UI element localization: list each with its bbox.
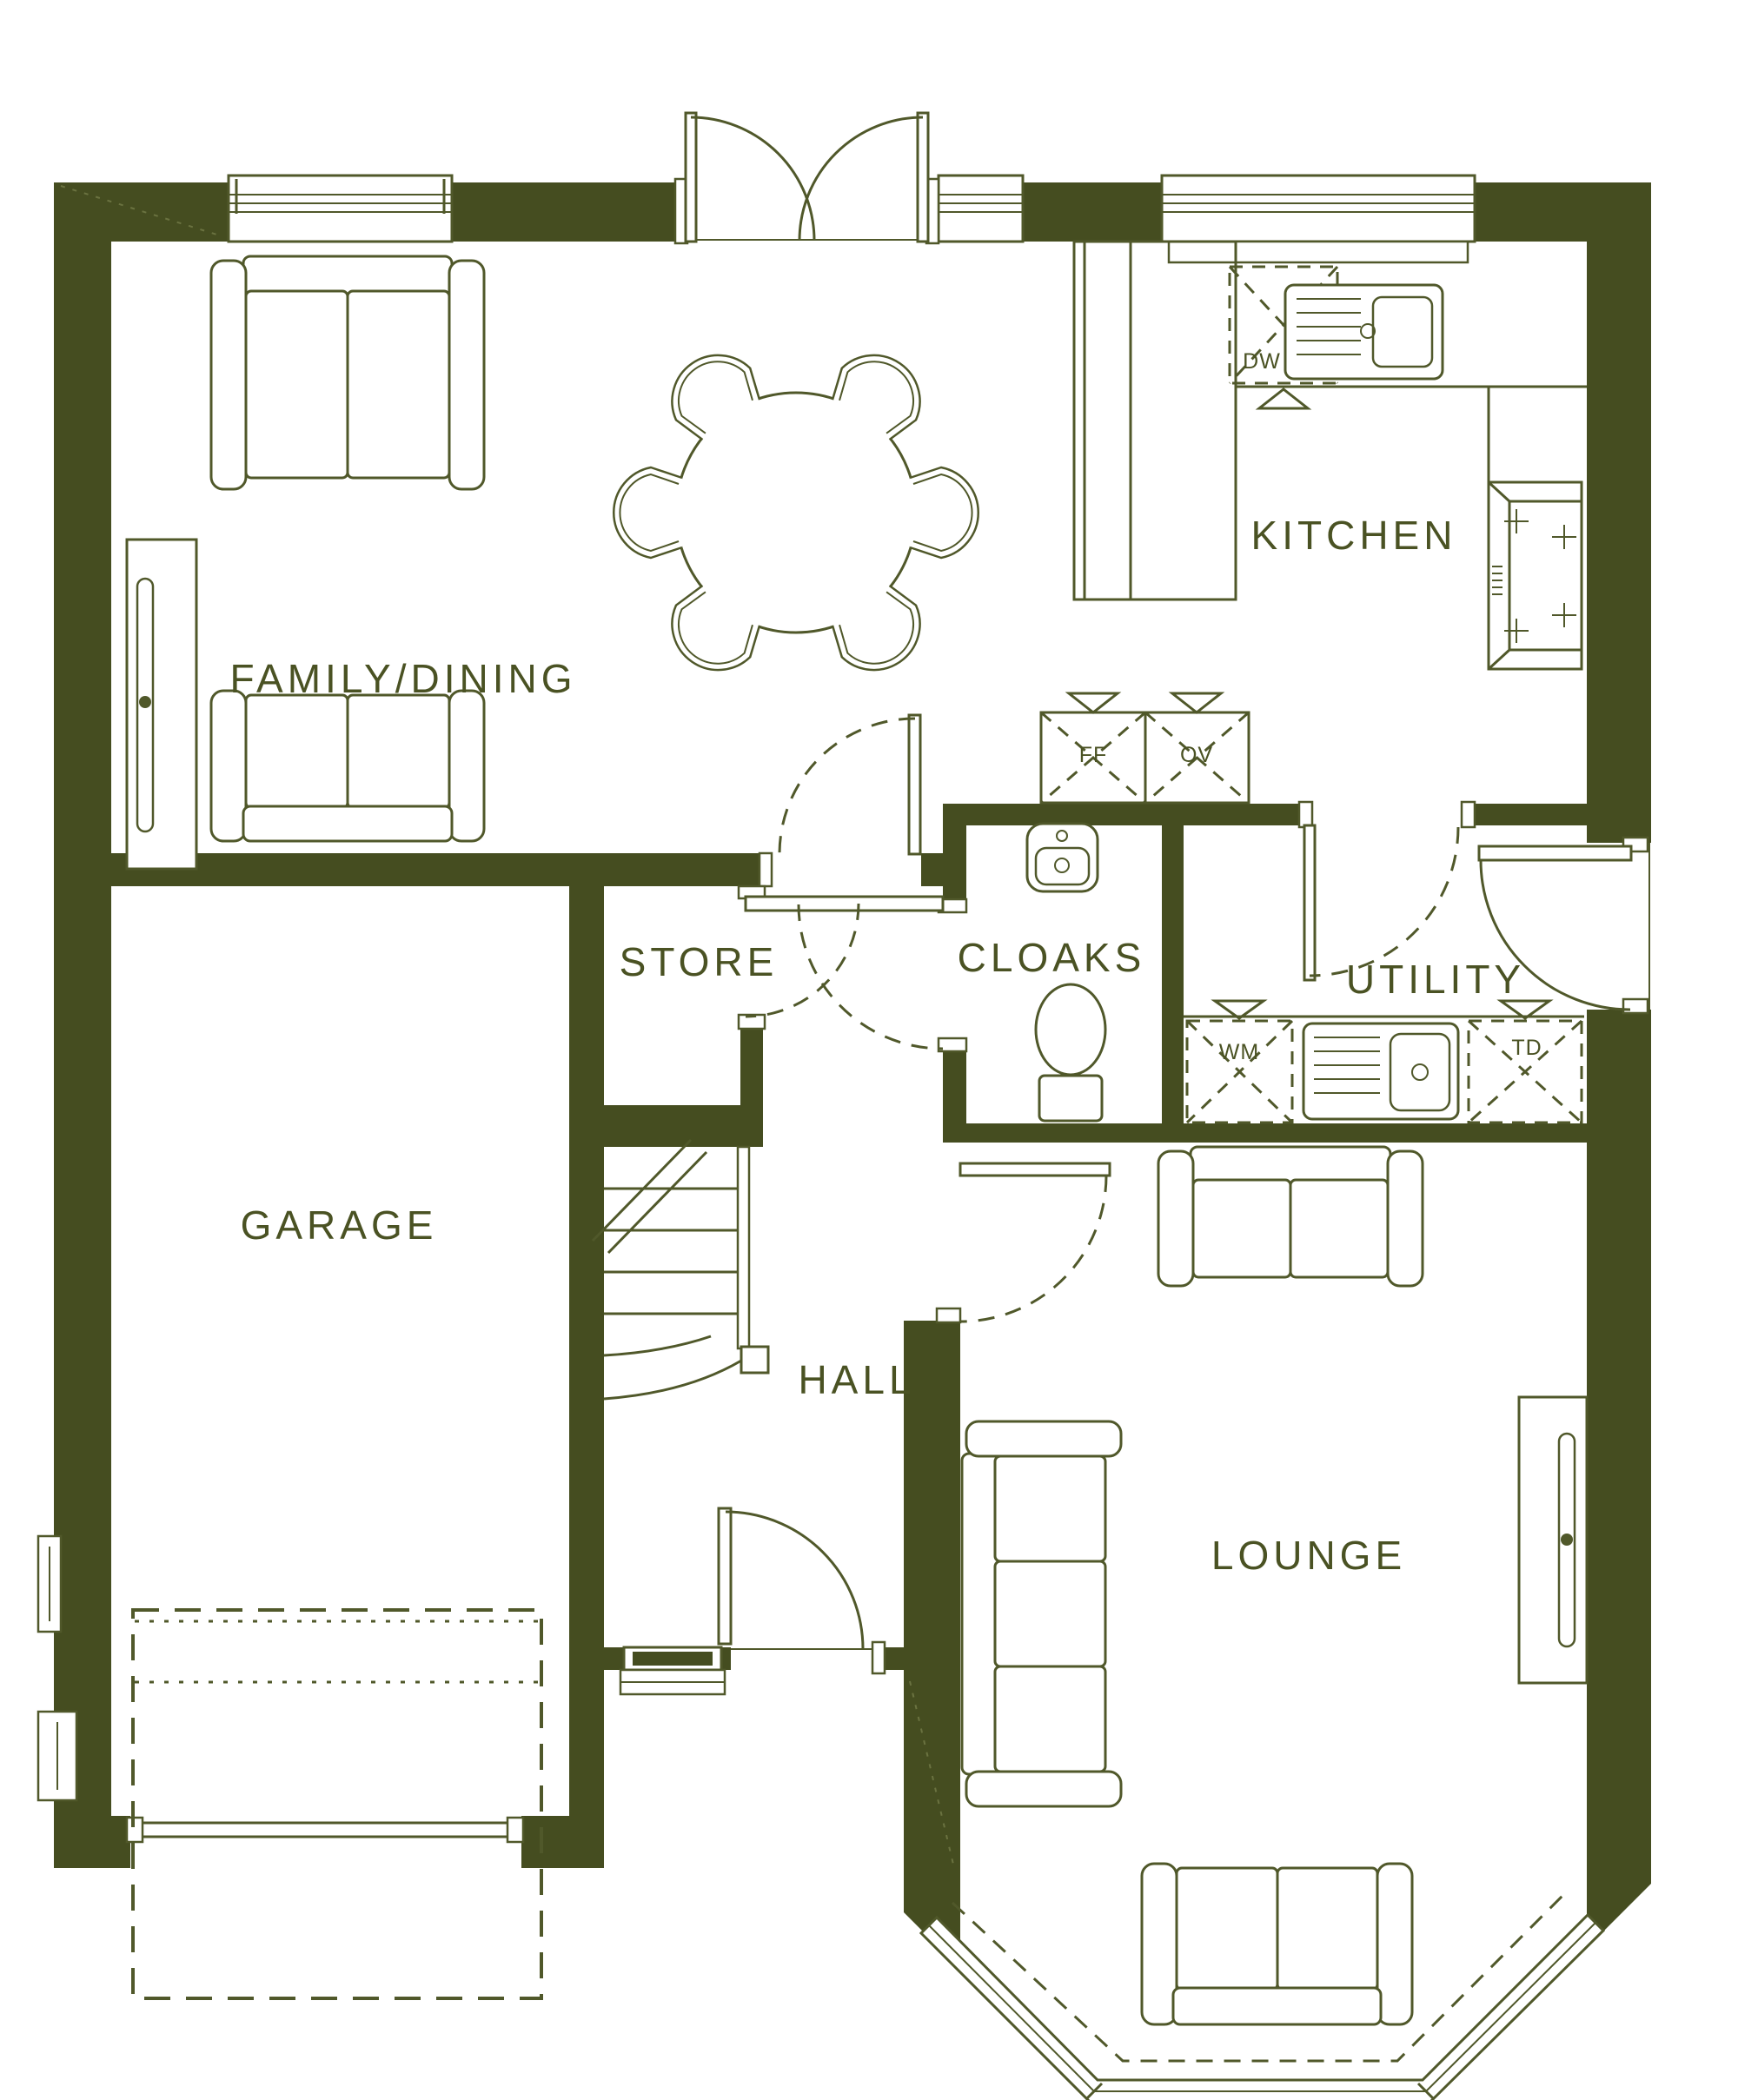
wall-utility-west: [1162, 825, 1184, 1123]
lounge-sofa-bay: [1142, 1864, 1412, 2024]
appliance-label-ov: OV: [1180, 743, 1213, 767]
kitchen-tall-units: [1074, 242, 1236, 600]
wall-hall-front-2: [721, 1647, 731, 1670]
family-door-leaf: [909, 715, 920, 854]
lounge-door-leaf: [960, 1163, 1110, 1176]
wall-cloaks-top: [943, 804, 1312, 825]
room-label-family-dining: FAMILY/DINING: [230, 656, 577, 701]
kitchen-utility-door-leaf: [1304, 825, 1315, 980]
kitchen-window: [1162, 176, 1475, 262]
lounge-sofa-west: [962, 1421, 1121, 1806]
room-label-lounge: LOUNGE: [1211, 1533, 1406, 1578]
french-doors: [675, 113, 939, 243]
room-label-kitchen: KITCHEN: [1251, 513, 1457, 558]
family-sofa-top: [211, 256, 484, 489]
washing-machine-box: [1187, 1021, 1292, 1123]
room-label-garage: GARAGE: [241, 1202, 438, 1248]
wall-post-family-door: [921, 853, 943, 886]
wall-top-2: [452, 182, 675, 242]
stair-break-line-2: [608, 1152, 706, 1253]
hob: [1489, 482, 1582, 669]
toilet: [1036, 984, 1105, 1121]
appliance-label-dw: DW: [1243, 349, 1281, 374]
lounge-furniture: [962, 1147, 1587, 2024]
french-door-right-leaf: [918, 113, 928, 242]
wall-garage-front-left: [54, 1816, 130, 1868]
wall-garage-east: [569, 886, 604, 1868]
room-label-store: STORE: [620, 939, 779, 984]
cloaks-door-swing: [799, 904, 943, 1049]
wall-right-lower: [1587, 1010, 1651, 1948]
french-door-left-leaf: [686, 113, 696, 242]
stair-handrail: [738, 1147, 749, 1348]
appliance-label-wm: WM: [1219, 1040, 1259, 1064]
utility-sink-bowl: [1390, 1034, 1449, 1110]
garage-parking-dashed: [133, 1610, 541, 1998]
hob-burners: [1504, 509, 1576, 643]
kitchen-sink: [1285, 285, 1443, 379]
meter-box-2: [38, 1712, 76, 1800]
store-cloaks-door-leaves: [746, 897, 943, 911]
family-dining-door: [760, 715, 920, 886]
floor-plan: FAMILY/DINING KITCHEN STORE CLOAKS UTILI…: [0, 0, 1738, 2100]
wall-store-east: [740, 1030, 763, 1108]
appliance-label-ff: FF: [1079, 743, 1108, 767]
kitchen-sink-bowl: [1373, 297, 1432, 367]
lounge-door: [937, 1163, 1110, 1322]
family-radiator: [127, 540, 196, 869]
kitchen-utility-door: [1299, 802, 1475, 980]
hob-grill: [1492, 566, 1503, 594]
family-window: [229, 176, 452, 242]
lounge-sofa-north: [1158, 1147, 1423, 1286]
garage-door: [127, 1818, 523, 1842]
stair-newel: [741, 1347, 768, 1373]
front-door: [719, 1508, 885, 1673]
marker-triangle-ff: [1069, 693, 1118, 712]
marker-triangle-ov: [1172, 693, 1221, 712]
wall-store-bottom: [569, 1105, 763, 1147]
family-window-small: [939, 176, 1023, 242]
utility-sink: [1303, 1024, 1458, 1119]
room-label-utility: UTILITY: [1346, 957, 1525, 1002]
meter-box-1: [38, 1536, 61, 1632]
stairs: [593, 1140, 768, 1399]
lounge-radiator: [1519, 1397, 1587, 1683]
wall-right-upper: [1587, 182, 1651, 843]
wall-lounge-north: [943, 1123, 1587, 1143]
room-label-cloaks: CLOAKS: [958, 935, 1146, 980]
wall-top-3: [1023, 182, 1162, 242]
wall-hall-front-1: [604, 1647, 624, 1670]
dining-table: [614, 338, 978, 688]
marker-triangle-sink: [1259, 389, 1308, 408]
floor-plan-svg: FAMILY/DINING KITCHEN STORE CLOAKS UTILI…: [0, 0, 1738, 2100]
front-door-leaf: [719, 1508, 731, 1644]
wall-hall-front-3: [885, 1647, 904, 1670]
wall-hall-lounge-divider: [904, 1321, 960, 1969]
appliance-label-td: TD: [1511, 1036, 1542, 1060]
room-label-hall: HALL: [798, 1357, 915, 1402]
wall-left: [54, 182, 111, 1868]
wall-utility-top: [1462, 804, 1587, 825]
stair-break-line: [593, 1140, 691, 1241]
utility-door-leaf: [1479, 846, 1631, 860]
wall-cloaks-west-upper: [943, 825, 966, 899]
family-dining-furniture: [127, 256, 978, 869]
basin: [1027, 824, 1098, 891]
family-sofa-bottom: [211, 691, 484, 841]
hall-front-window: [620, 1647, 725, 1694]
garage-fittings: [38, 1536, 541, 1998]
